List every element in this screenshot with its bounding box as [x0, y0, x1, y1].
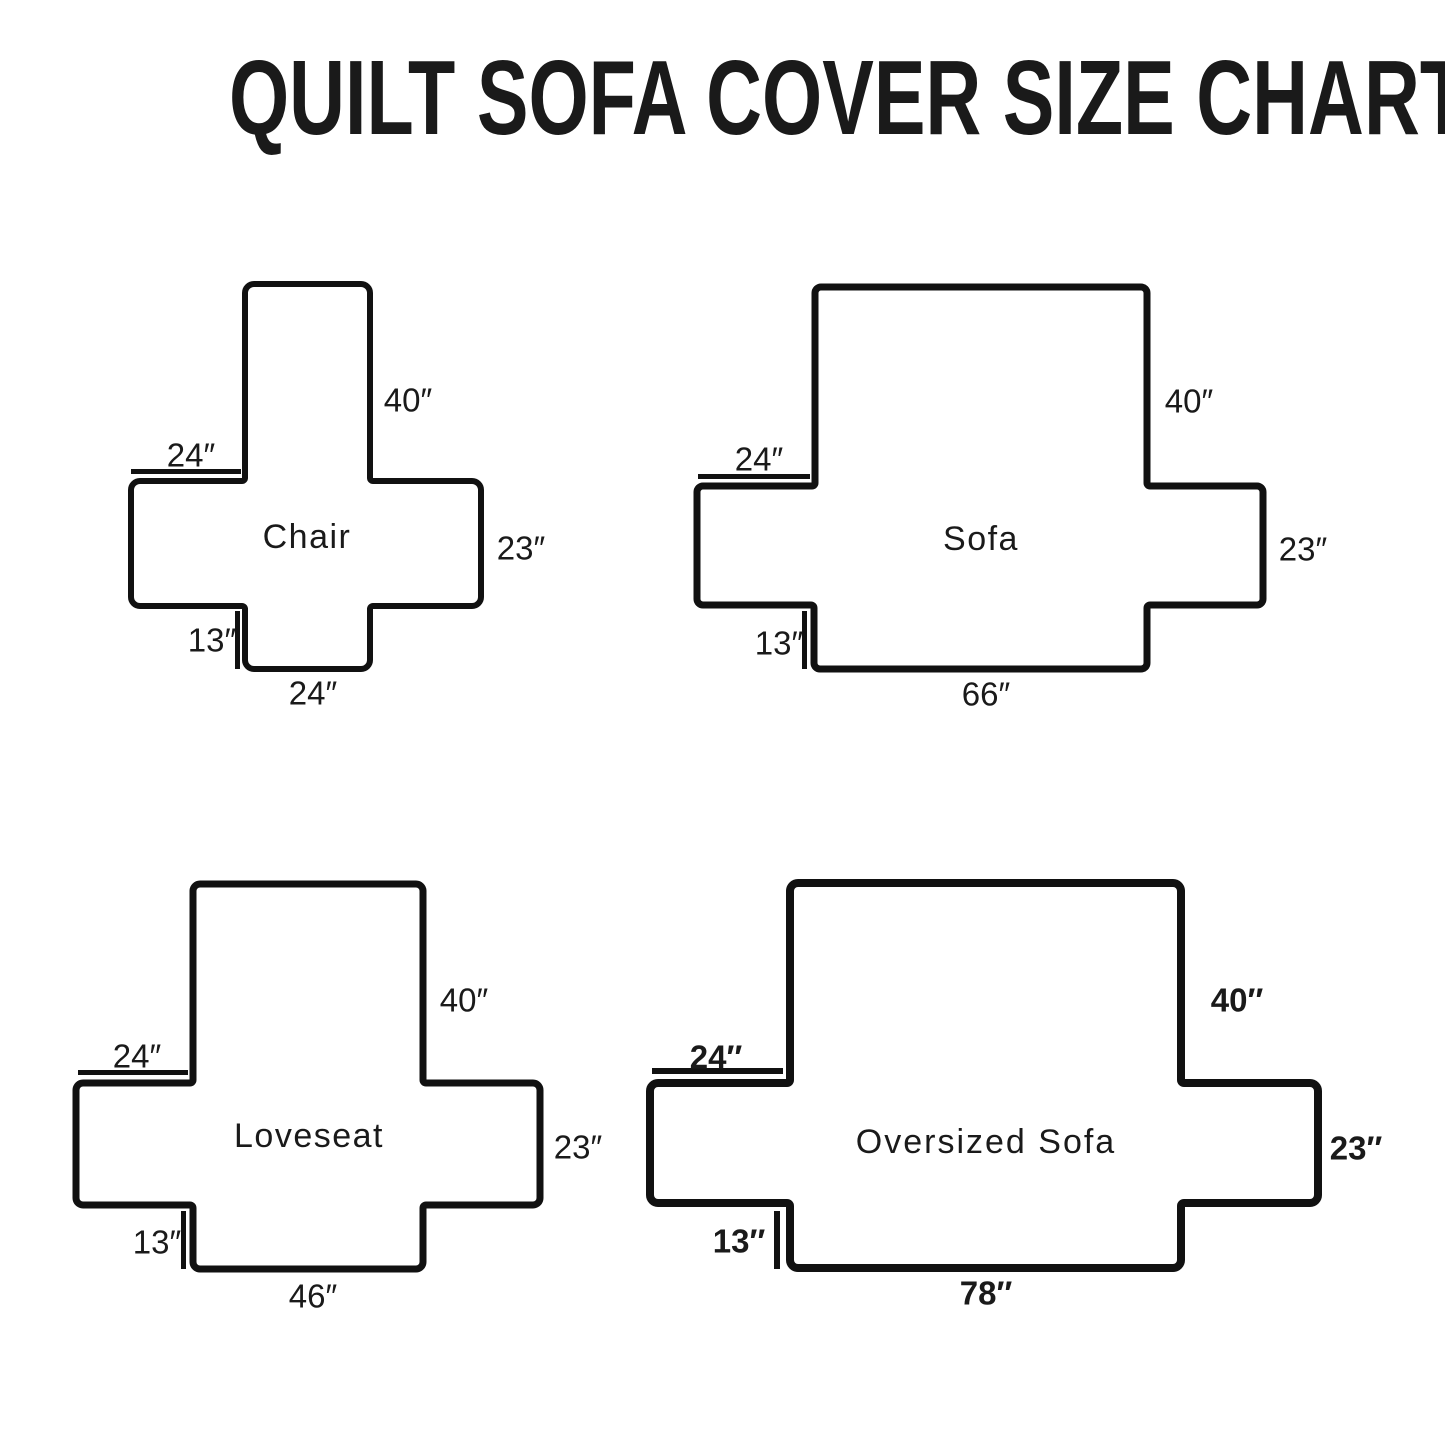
chair-arm-length-label: 24″: [167, 439, 215, 472]
oversized-sofa-arm-length-label: 24″: [690, 1041, 743, 1074]
sofa-arm-length-label: 24″: [735, 443, 783, 476]
loveseat-name-label: Loveseat: [234, 1119, 384, 1153]
oversized-sofa-outline-path: [650, 883, 1318, 1268]
page-title: QUILT SOFA COVER SIZE CHART: [0, 38, 1445, 160]
chair-skirt-height-label: 13″: [188, 624, 236, 657]
oversized-sofa-side-height-label: 23″: [1330, 1132, 1383, 1165]
sofa-cover-outline: [694, 284, 1268, 674]
loveseat-outline-path: [76, 884, 540, 1269]
oversized-sofa-cover-outline: [644, 877, 1324, 1275]
page-title-text: QUILT SOFA COVER SIZE CHART: [229, 38, 1445, 160]
oversized-sofa-name-label: Oversized Sofa: [856, 1125, 1116, 1159]
loveseat-skirt-height-label: 13″: [133, 1226, 181, 1259]
oversized-sofa-bottom-width-label: 78″: [960, 1277, 1013, 1310]
chair-outline-path: [131, 284, 481, 669]
sofa-name-label: Sofa: [943, 522, 1019, 556]
sofa-back-height-label: 40″: [1165, 385, 1213, 418]
chair-bottom-width-label: 24″: [289, 677, 337, 710]
sofa-bottom-width-label: 66″: [962, 678, 1010, 711]
oversized-sofa-skirt-height-label: 13″: [713, 1225, 766, 1258]
chair-back-height-label: 40″: [384, 384, 432, 417]
chair-side-height-label: 23″: [497, 532, 545, 565]
loveseat-arm-length-label: 24″: [113, 1040, 161, 1073]
loveseat-side-height-label: 23″: [554, 1131, 602, 1164]
loveseat-back-height-label: 40″: [440, 984, 488, 1017]
loveseat-bottom-width-label: 46″: [289, 1280, 337, 1313]
size-chart-canvas: QUILT SOFA COVER SIZE CHART Chair 40″ 24…: [0, 0, 1445, 1435]
sofa-side-height-label: 23″: [1279, 533, 1327, 566]
oversized-sofa-back-height-label: 40″: [1211, 984, 1264, 1017]
loveseat-cover-outline: [73, 880, 543, 1272]
chair-name-label: Chair: [263, 520, 352, 554]
chair-cover-outline: [128, 281, 484, 672]
loveseat-skirt-dimension-line: [181, 1211, 186, 1269]
sofa-skirt-height-label: 13″: [755, 627, 803, 660]
oversized-sofa-skirt-dimension-line: [774, 1211, 780, 1269]
